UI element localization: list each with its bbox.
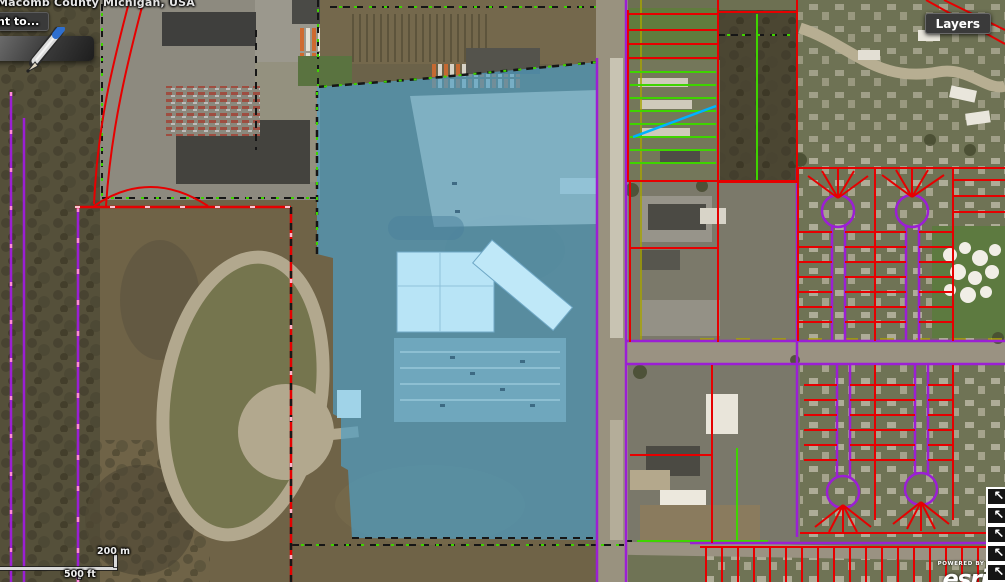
scale-bar: 200 m 500 ft (0, 546, 140, 582)
northwest-arrow-icon[interactable]: ↖ (986, 525, 1005, 544)
esri-logo[interactable]: esri (938, 567, 992, 582)
pencil-icon[interactable] (24, 27, 66, 73)
northwest-arrow-icon[interactable]: ↖ (986, 506, 1005, 525)
northwest-arrow-icon[interactable]: ↖ (986, 544, 1005, 563)
map-viewport: Macomb County Michigan, USA nt to... Lay… (0, 0, 1005, 582)
northwest-arrow-icon[interactable]: ↖ (986, 487, 1005, 506)
satellite-map-canvas[interactable] (0, 0, 1005, 582)
esri-attribution: POWERED BY ● esri (938, 562, 992, 582)
highlighted-parcel (317, 62, 598, 540)
scale-bar-line (0, 567, 117, 570)
scale-imperial-label: 500 ft (64, 569, 96, 580)
map-attribution-text: Macomb County Michigan, USA (0, 0, 195, 9)
northwest-arrow-icon[interactable]: ↖ (986, 563, 1005, 582)
scale-metric-label: 200 m (97, 546, 130, 557)
cursor-icon-stack: ↖ ↖ ↖ ↖ ↖ (986, 487, 1005, 582)
layers-button[interactable]: Layers (925, 13, 991, 34)
